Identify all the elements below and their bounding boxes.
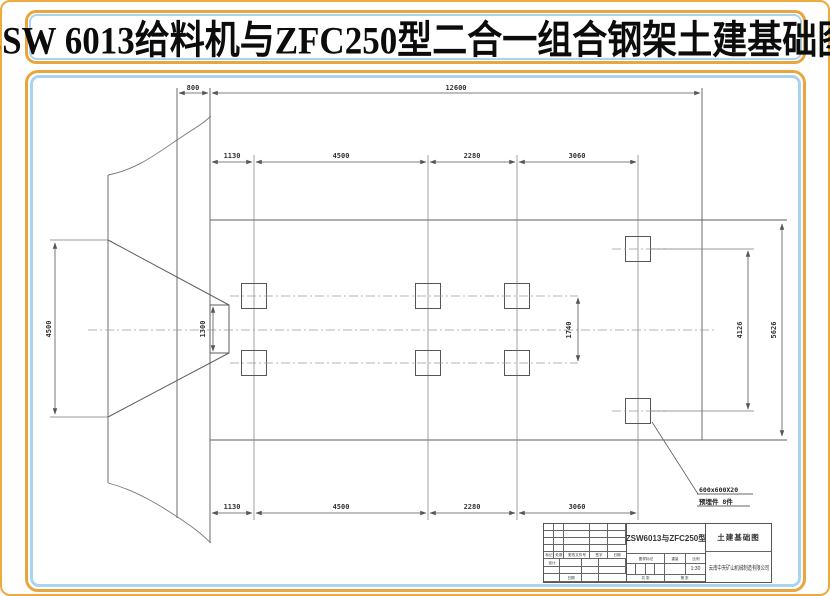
dim-4500-bottom: 4500 xyxy=(333,503,350,511)
rev-header-file: 更改文件号 xyxy=(568,553,586,557)
model-designation: ZSW6013与ZFC250型 xyxy=(627,524,705,554)
title-block-name-area: 土建基础图 云南中天矿山机械制造有限公司 xyxy=(706,524,771,582)
sheet-number: 第 张 xyxy=(681,576,689,580)
dim-1740: 1740 xyxy=(565,322,573,339)
drawing-sheet: ZSW 6013给料机与ZFC250型二合一组合钢架土建基础图 xyxy=(0,0,830,596)
scale-label: 比例 xyxy=(692,557,699,561)
scale-value: 1:30 xyxy=(691,567,701,572)
title-block-revision-area: 标记 处数 更改文件号 签字 日期 设计 日期 xyxy=(544,524,627,582)
company-cell: 云南中天矿山机械制造有限公司 xyxy=(706,552,771,582)
extension-lines xyxy=(50,240,754,417)
dim-2280-top: 2280 xyxy=(464,152,481,160)
design-label: 设计 xyxy=(548,561,555,565)
dim-1130-bottom: 1130 xyxy=(224,503,241,511)
break-line-bottom xyxy=(108,483,211,543)
sheet-total: 共 张 xyxy=(641,576,649,580)
title-block: 标记 处数 更改文件号 签字 日期 设计 日期 ZSW6013与ZFC250型 … xyxy=(543,523,772,583)
cad-drawing: 800 12600 1130 4500 2280 3060 1130 4500 … xyxy=(0,0,830,596)
document-title: 土建基础图 xyxy=(706,524,771,552)
dim-2280-bottom: 2280 xyxy=(464,503,481,511)
foundation-outline xyxy=(210,88,787,543)
company-name: 云南中天矿山机械制造有限公司 xyxy=(708,563,768,572)
rev-header-sign: 签字 xyxy=(595,553,602,557)
dim-800: 800 xyxy=(187,84,200,92)
rev-header-date: 日期 xyxy=(613,553,620,557)
dim-12600: 12600 xyxy=(445,84,466,92)
title-block-model-area: ZSW6013与ZFC250型 图样标记 重量 比例 1:30 共 张 第 张 xyxy=(627,524,706,582)
leader-annotation: 600x600X20 预埋件 8件 xyxy=(652,422,753,506)
dim-5626: 5626 xyxy=(770,322,778,339)
center-lines xyxy=(88,249,714,411)
rev-header-mark: 标记 xyxy=(545,553,552,557)
dim-3060-bottom: 3060 xyxy=(569,503,586,511)
feeder-hopper xyxy=(108,88,229,543)
weight-label: 重量 xyxy=(671,557,678,561)
dim-4500-top: 4500 xyxy=(333,152,350,160)
dim-3060-top: 3060 xyxy=(569,152,586,160)
annotation-qty: 预埋件 8件 xyxy=(699,497,733,506)
dim-4126: 4126 xyxy=(736,322,744,339)
dimension-lines xyxy=(55,93,782,513)
dim-4500-left: 4500 xyxy=(45,321,53,338)
annotation-size: 600x600X20 xyxy=(699,486,738,494)
leader-line xyxy=(652,422,698,494)
rev-header-count: 处数 xyxy=(555,553,562,557)
mark-label: 图样标记 xyxy=(638,557,652,561)
break-line-top xyxy=(108,116,211,175)
date-label: 日期 xyxy=(567,576,574,580)
dim-1300-outlet: 1300 xyxy=(199,321,207,338)
dim-1130-top: 1130 xyxy=(224,152,241,160)
